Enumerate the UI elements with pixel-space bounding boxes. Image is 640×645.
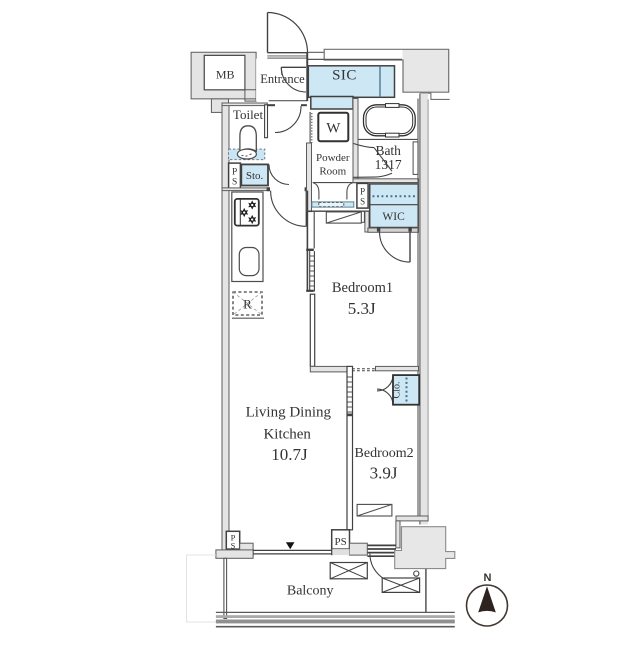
svg-text:Sto.: Sto. [246, 170, 264, 182]
svg-text:N: N [484, 572, 492, 584]
svg-text:MB: MB [216, 67, 235, 81]
svg-text:Kitchen: Kitchen [263, 426, 311, 442]
svg-text:Living Dining: Living Dining [246, 404, 332, 420]
svg-text:WIC: WIC [382, 211, 405, 223]
svg-text:Toilet: Toilet [233, 107, 264, 122]
svg-text:Powder: Powder [316, 152, 350, 164]
svg-text:PS: PS [334, 536, 346, 548]
svg-text:P: P [360, 187, 365, 197]
svg-text:P: P [232, 168, 237, 178]
svg-text:S: S [360, 197, 365, 207]
svg-text:Bedroom1: Bedroom1 [332, 280, 393, 296]
svg-text:R: R [243, 296, 252, 311]
svg-text:3.9J: 3.9J [370, 463, 398, 482]
svg-text:Balcony: Balcony [287, 584, 334, 599]
svg-text:S: S [231, 541, 236, 551]
svg-text:Room: Room [319, 165, 346, 177]
svg-text:1317: 1317 [375, 157, 402, 172]
svg-text:10.7J: 10.7J [271, 445, 308, 464]
svg-text:SIC: SIC [332, 68, 357, 84]
svg-text:Bath: Bath [375, 143, 401, 158]
svg-text:5.3J: 5.3J [348, 299, 376, 318]
svg-text:Bedroom2: Bedroom2 [355, 446, 414, 461]
svg-text:W: W [326, 121, 341, 137]
svg-text:S: S [232, 178, 237, 188]
svg-text:Clo.: Clo. [392, 382, 403, 399]
